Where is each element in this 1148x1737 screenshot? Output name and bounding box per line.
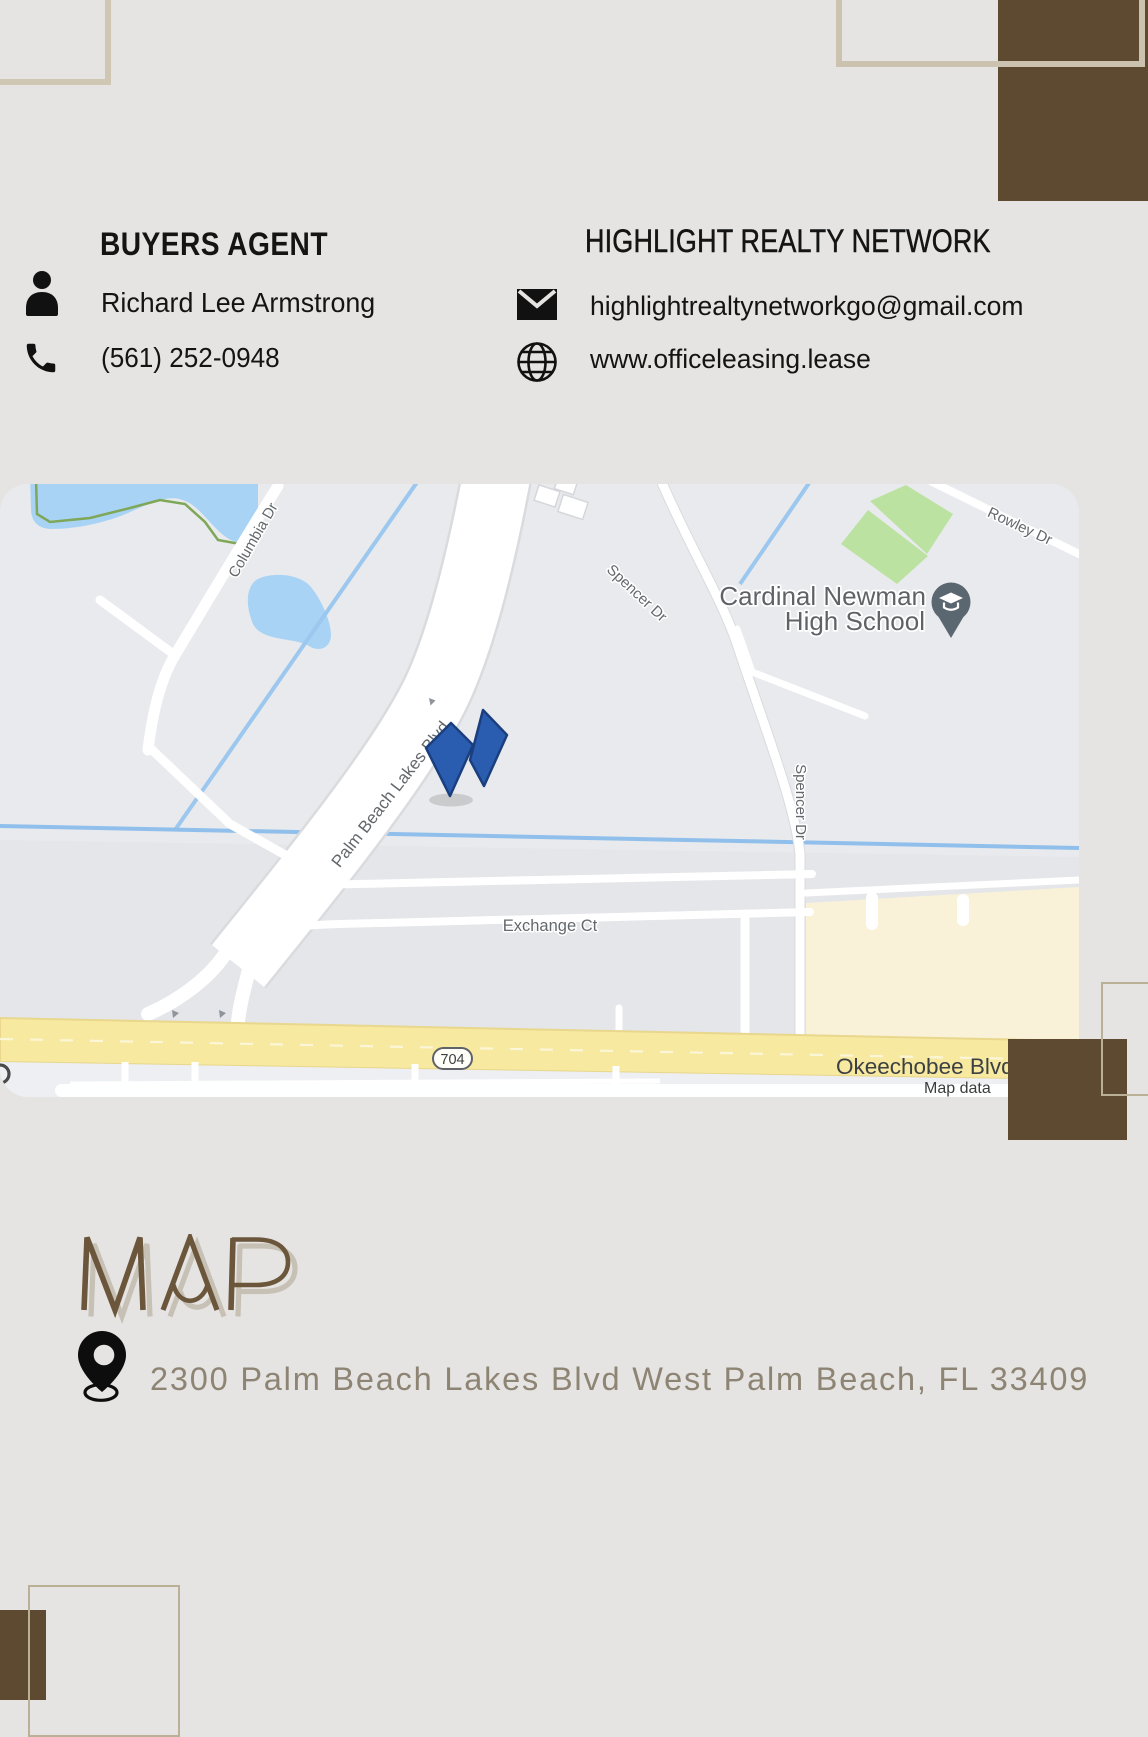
svg-text:704: 704 [440, 1052, 464, 1068]
svg-text:High School: High School [785, 606, 925, 636]
svg-text:Exchange Ct: Exchange Ct [503, 917, 598, 935]
svg-text:Spencer Dr: Spencer Dr [792, 764, 809, 840]
svg-text:Okeechobee Blvd: Okeechobee Blvd [836, 1054, 1014, 1079]
svg-text:Map data: Map data [924, 1080, 991, 1097]
